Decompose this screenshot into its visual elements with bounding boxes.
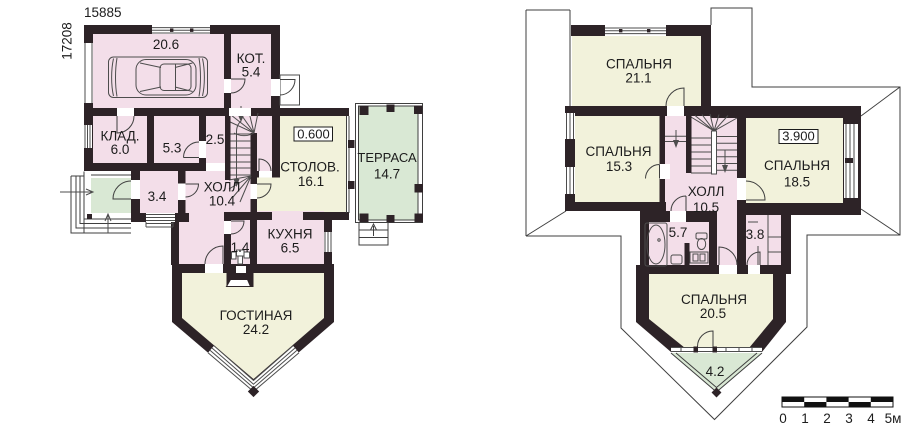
svg-text:24.2: 24.2 xyxy=(243,322,269,337)
svg-text:15.3: 15.3 xyxy=(606,159,632,174)
svg-text:18.5: 18.5 xyxy=(784,175,810,190)
svg-text:20.5: 20.5 xyxy=(700,306,726,321)
svg-text:ГОСТИНАЯ: ГОСТИНАЯ xyxy=(220,308,293,323)
svg-text:14.7: 14.7 xyxy=(374,167,400,182)
svg-text:СТОЛОВ.: СТОЛОВ. xyxy=(280,160,339,175)
svg-text:2: 2 xyxy=(823,411,831,425)
svg-text:КУХНЯ: КУХНЯ xyxy=(267,227,312,242)
svg-text:15885: 15885 xyxy=(84,5,122,20)
svg-text:3: 3 xyxy=(845,411,853,425)
svg-text:21.1: 21.1 xyxy=(625,71,651,86)
svg-text:СПАЛЬНЯ: СПАЛЬНЯ xyxy=(681,292,747,307)
svg-text:20.6: 20.6 xyxy=(153,37,179,52)
svg-text:10.5: 10.5 xyxy=(693,200,719,215)
svg-text:16.1: 16.1 xyxy=(298,174,324,189)
svg-text:1: 1 xyxy=(801,411,809,425)
svg-text:ТЕРРАСА: ТЕРРАСА xyxy=(357,150,417,165)
svg-text:1.4: 1.4 xyxy=(231,240,250,255)
svg-text:6.0: 6.0 xyxy=(111,142,130,157)
svg-text:5.4: 5.4 xyxy=(242,65,261,80)
svg-text:5.3: 5.3 xyxy=(163,141,182,156)
svg-text:5м: 5м xyxy=(885,411,902,425)
svg-text:6.5: 6.5 xyxy=(281,241,300,256)
svg-text:3.4: 3.4 xyxy=(148,189,167,204)
svg-text:10.4: 10.4 xyxy=(209,194,236,209)
svg-text:ХОЛЛ: ХОЛЛ xyxy=(688,184,725,199)
svg-text:2.5: 2.5 xyxy=(206,132,225,147)
svg-text:0.600: 0.600 xyxy=(297,127,330,142)
svg-text:4: 4 xyxy=(867,411,875,425)
svg-text:ХОЛЛ: ХОЛЛ xyxy=(204,180,241,195)
svg-text:СПАЛЬНЯ: СПАЛЬНЯ xyxy=(586,144,652,159)
svg-text:СПАЛЬНЯ: СПАЛЬНЯ xyxy=(606,57,672,72)
svg-text:3.900: 3.900 xyxy=(782,129,815,144)
svg-text:17208: 17208 xyxy=(60,22,75,60)
svg-text:3.8: 3.8 xyxy=(746,227,765,242)
svg-text:СПАЛЬНЯ: СПАЛЬНЯ xyxy=(764,158,830,173)
svg-text:0: 0 xyxy=(779,411,787,425)
svg-text:5.7: 5.7 xyxy=(669,225,688,240)
svg-text:4.2: 4.2 xyxy=(706,364,725,379)
